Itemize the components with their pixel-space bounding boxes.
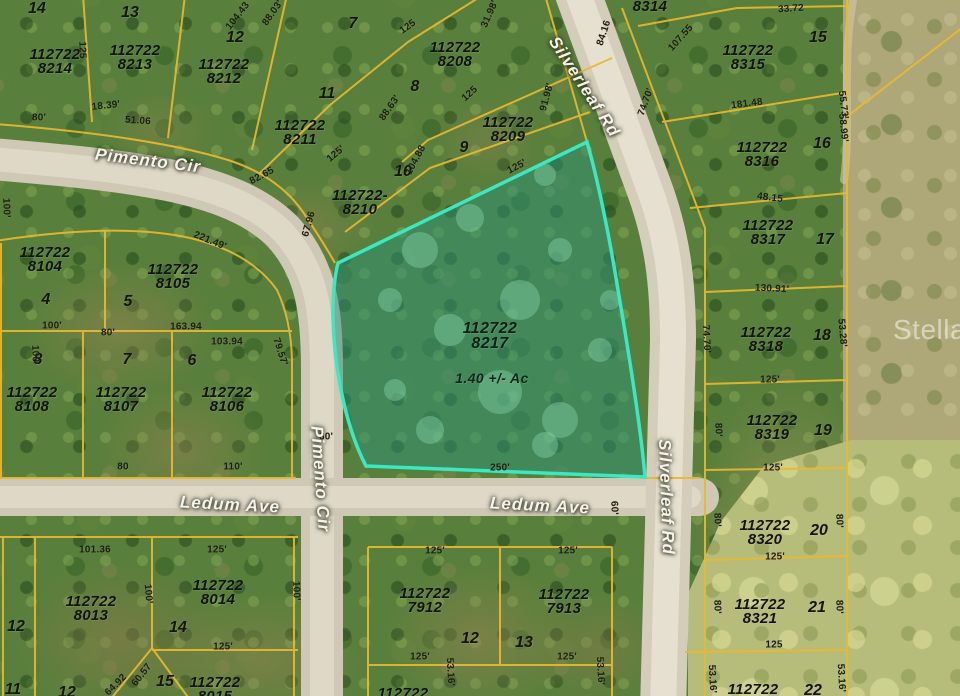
aerial-parcel-map-photo[interactable]: 1127228214112722821311272282121127228211… [0, 0, 960, 696]
street-label: Ledum Ave [490, 493, 591, 518]
street-label: Pimento Cir [94, 145, 202, 178]
highlighted-parcel-area: 1.40 +/- Ac [455, 370, 529, 386]
street-label: Silverleaf Rd [544, 33, 624, 141]
highlighted-parcel-apn: 112722 8217 [463, 321, 518, 351]
street-label: Silverleaf Rd [654, 439, 678, 556]
street-label: Pimento Cir [306, 425, 333, 533]
mls-watermark: Stellar [893, 314, 960, 346]
street-label: Ledum Ave [180, 492, 281, 517]
